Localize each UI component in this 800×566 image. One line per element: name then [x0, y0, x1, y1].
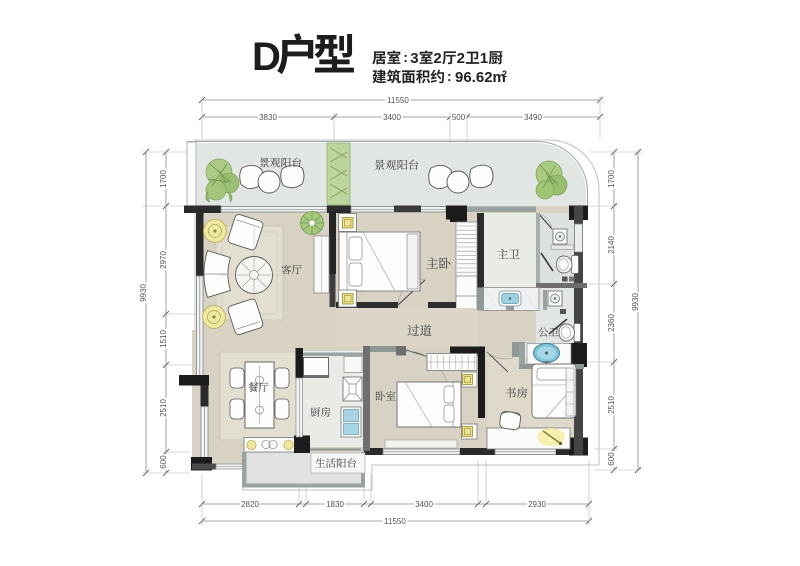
svg-text:3490: 3490: [524, 113, 542, 122]
svg-text:2140: 2140: [607, 236, 616, 254]
svg-text:500: 500: [452, 113, 466, 122]
svg-text:600: 600: [607, 452, 616, 466]
svg-text:3: 3: [410, 50, 418, 67]
svg-text:2970: 2970: [159, 251, 168, 269]
svg-text:1700: 1700: [607, 170, 616, 188]
svg-text:9930: 9930: [139, 284, 148, 302]
svg-text:96.62m: 96.62m: [455, 69, 506, 86]
svg-text::: :: [447, 68, 452, 84]
svg-text:2: 2: [433, 50, 441, 67]
svg-text:D: D: [252, 35, 281, 79]
svg-text:2: 2: [502, 69, 507, 79]
svg-text:3830: 3830: [259, 113, 277, 122]
svg-text:2820: 2820: [241, 500, 259, 509]
svg-text:3400: 3400: [415, 500, 433, 509]
svg-text:11550: 11550: [387, 96, 409, 105]
svg-text:1: 1: [480, 50, 488, 67]
svg-text:1700: 1700: [159, 170, 168, 188]
svg-text:1830: 1830: [326, 500, 344, 509]
svg-text::: :: [403, 49, 408, 65]
svg-text:9930: 9930: [631, 293, 640, 311]
svg-text:2510: 2510: [607, 396, 616, 414]
svg-text:2360: 2360: [607, 314, 616, 332]
svg-text:11550: 11550: [384, 517, 406, 526]
svg-text:1510: 1510: [159, 330, 168, 348]
svg-text:3400: 3400: [383, 113, 401, 122]
svg-text:2930: 2930: [528, 500, 546, 509]
svg-text:2: 2: [457, 50, 465, 67]
svg-text:2510: 2510: [159, 399, 168, 417]
svg-text:600: 600: [159, 455, 168, 469]
